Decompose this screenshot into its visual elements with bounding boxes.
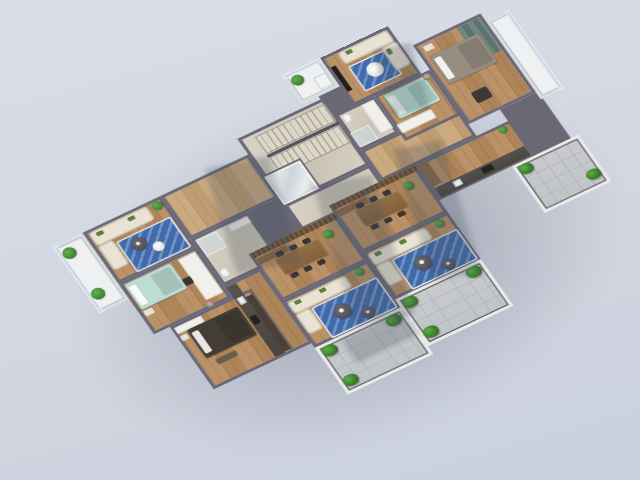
floorplan	[20, 0, 640, 473]
scene	[0, 0, 640, 480]
